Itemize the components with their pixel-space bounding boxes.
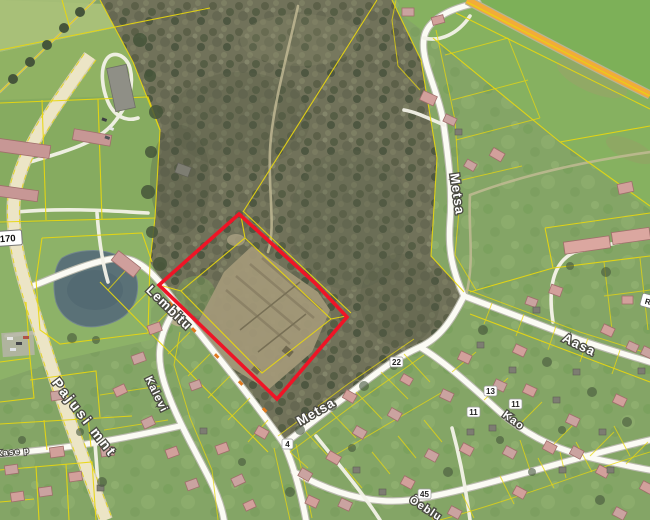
house-number-badge: 11	[467, 407, 480, 417]
house-number-badge: 45	[418, 489, 431, 499]
house-number-badge: 22	[390, 357, 403, 367]
svg-text:45: 45	[420, 490, 429, 499]
house-number-badge: 4	[282, 439, 293, 449]
house-number-badge: 13	[484, 386, 497, 396]
svg-text:4170: 4170	[0, 233, 16, 245]
svg-text:11: 11	[469, 408, 478, 417]
svg-text:4: 4	[285, 440, 290, 449]
svg-text:R: R	[644, 297, 650, 307]
house-number-badge: 11	[509, 399, 522, 409]
svg-text:22: 22	[392, 358, 401, 367]
map-viewport[interactable]: Pajusi mnt Lembitu Kalevi Metsa Metsa Aa…	[0, 0, 650, 520]
road-number-badge: 4170	[0, 230, 22, 247]
svg-text:11: 11	[511, 400, 520, 409]
map-canvas[interactable]: Pajusi mnt Lembitu Kalevi Metsa Metsa Aa…	[0, 0, 650, 520]
svg-text:13: 13	[486, 387, 495, 396]
